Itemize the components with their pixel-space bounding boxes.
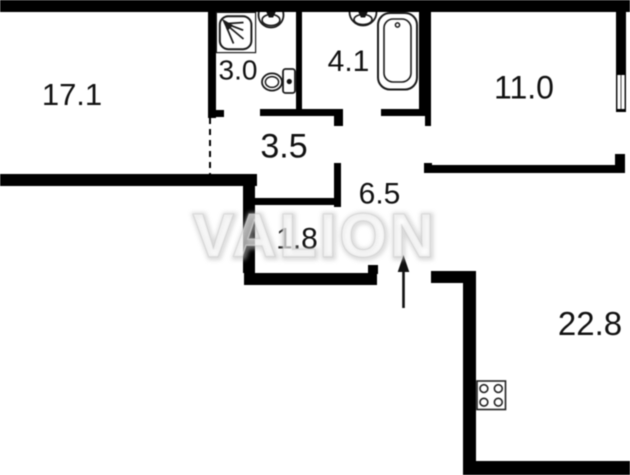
svg-text:3.0: 3.0 [219, 55, 258, 86]
svg-text:17.1: 17.1 [42, 77, 102, 112]
svg-text:3.5: 3.5 [260, 128, 307, 166]
svg-text:11.0: 11.0 [494, 70, 554, 106]
svg-text:22.8: 22.8 [558, 305, 622, 342]
svg-text:4.1: 4.1 [328, 45, 370, 78]
svg-text:VALION: VALION [193, 202, 437, 270]
